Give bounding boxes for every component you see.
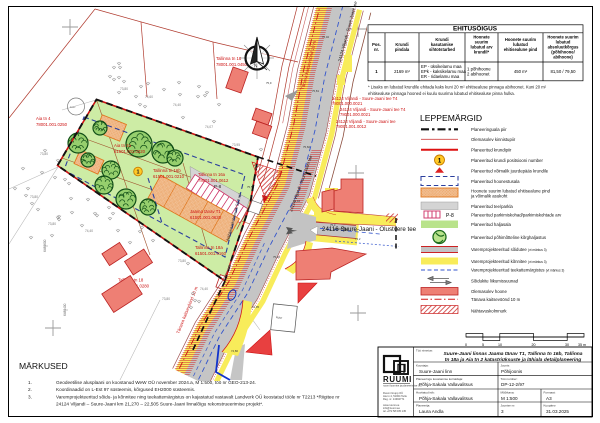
svg-text:78001.000.0021: 78001.000.0021	[340, 112, 371, 117]
svg-text:75,5: 75,5	[247, 185, 253, 189]
svg-text:5: 5	[482, 343, 484, 347]
svg-text:Varemprojekteeritud teekattemä: Varemprojekteeritud teekattemärgistus (v…	[471, 268, 564, 273]
svg-text:Põhja-Sakala Vallavalitsus: Põhja-Sakala Vallavalitsus	[419, 382, 473, 387]
svg-text:pindala: pindala	[395, 47, 410, 52]
svg-text:P-8: P-8	[214, 184, 222, 189]
svg-text:6480600: 6480600	[43, 239, 47, 252]
svg-text:Laura Andla: Laura Andla	[419, 409, 444, 414]
svg-text:P-8: P-8	[446, 213, 454, 219]
svg-text:1: 1	[137, 169, 140, 175]
svg-text:krundil*: krundil*	[474, 50, 490, 55]
svg-text:LEPPEMÄRGID: LEPPEMÄRGID	[420, 113, 482, 123]
svg-text:Tallinna tn 16a: Tallinna tn 16a	[198, 172, 226, 177]
svg-text:Planeerija:: Planeerija:	[416, 404, 430, 408]
svg-text:3: 3	[501, 409, 504, 414]
svg-text:74,40: 74,40	[200, 287, 208, 291]
svg-text:Koordinaadid on L-Est 97 süste: Koordinaadid on L-Est 97 süsteemis, kõrg…	[56, 387, 195, 392]
svg-text:Reg. nr. 14392771: Reg. nr. 14392771	[383, 397, 405, 401]
svg-text:Koostaja:: Koostaja:	[416, 364, 429, 368]
svg-text:450 m²: 450 m²	[514, 69, 528, 74]
svg-text:73,80: 73,80	[178, 259, 186, 263]
svg-text:78001.001.0012: 78001.001.0012	[336, 124, 367, 129]
svg-text:RUUMI: RUUMI	[383, 375, 412, 384]
svg-text:Tänava kaitsevöönd 10 m: Tänava kaitsevöönd 10 m	[471, 297, 521, 302]
svg-text:Planeeringuala piir: Planeeringuala piir	[471, 127, 507, 132]
svg-text:73,80: 73,80	[40, 152, 48, 156]
svg-text:75,60: 75,60	[303, 145, 310, 149]
svg-text:61501.001.0220: 61501.001.0220	[114, 149, 146, 154]
svg-text:1.: 1.	[28, 380, 32, 385]
svg-text:3.: 3.	[28, 395, 32, 400]
svg-text:tel +372 58 005 145: tel +372 58 005 145	[383, 409, 407, 413]
svg-text:Planeeritud krundipiir: Planeeritud krundipiir	[471, 148, 512, 153]
svg-text:35 m: 35 m	[578, 343, 586, 347]
svg-text:2 abihoonet: 2 abihoonet	[467, 72, 490, 77]
svg-text:M 1:500: M 1:500	[501, 396, 518, 401]
svg-text:6480400: 6480400	[63, 303, 67, 316]
svg-text:74,40: 74,40	[173, 103, 181, 107]
svg-text:Huvitatud isik:: Huvitatud isik:	[416, 391, 435, 395]
svg-text:ruumi loomise ja planeerimise: ruumi loomise ja planeerimise OÜ	[383, 384, 422, 388]
svg-text:Formaat:: Formaat:	[544, 391, 556, 395]
svg-text:Suure-Jaani linn: Suure-Jaani linn	[419, 369, 453, 374]
svg-text:Põhijoonis: Põhijoonis	[501, 369, 523, 374]
svg-text:75,81: 75,81	[312, 89, 319, 93]
svg-text:Aia tn 2a: Aia tn 2a	[114, 143, 132, 148]
svg-text:Planeeritud hoonestusala: Planeeritud hoonestusala	[471, 179, 520, 184]
svg-text:81,50 / 79,50: 81,50 / 79,50	[550, 69, 576, 74]
svg-text:kaev: kaev	[70, 105, 76, 109]
svg-text:Jaama tänav T1: Jaama tänav T1	[190, 209, 221, 214]
svg-text:Töö number:: Töö number:	[501, 377, 518, 381]
svg-text:ja võimalik asukoht: ja võimalik asukoht	[470, 194, 508, 199]
svg-text:75,9: 75,9	[266, 81, 272, 85]
svg-text:74,40: 74,40	[85, 229, 93, 233]
svg-text:78001.000.0021: 78001.000.0021	[332, 101, 363, 106]
svg-text:Joonis:: Joonis:	[501, 364, 511, 368]
svg-text:73,80: 73,80	[162, 297, 170, 301]
svg-text:A3: A3	[546, 396, 552, 401]
svg-text:73,95: 73,95	[232, 143, 240, 147]
svg-text:Sõidukite liikumissuunad: Sõidukite liikumissuunad	[471, 279, 519, 284]
svg-text:73,80: 73,80	[30, 195, 38, 199]
svg-text:Mõõtkava:: Mõõtkava:	[501, 391, 515, 395]
svg-text:Nähtavuskolmnurk: Nähtavuskolmnurk	[471, 309, 507, 314]
svg-text:78001.001.0450: 78001.001.0450	[216, 62, 248, 67]
svg-text:74,80: 74,80	[231, 349, 238, 353]
svg-text:sihtotstarbed: sihtotstarbed	[429, 47, 455, 52]
svg-text:Suure-Jaani linnas Jaama tänav: Suure-Jaani linnas Jaama tänav T1, Talli…	[443, 351, 582, 357]
svg-text:0: 0	[465, 343, 467, 347]
svg-text:MÄRKUSED: MÄRKUSED	[19, 361, 68, 371]
svg-text:78001.001.0612: 78001.001.0612	[198, 178, 229, 183]
svg-text:61501.001.0160: 61501.001.0160	[195, 251, 227, 256]
svg-text:Olemasolev kinnistupiir: Olemasolev kinnistupiir	[471, 137, 516, 142]
svg-text:Planeeritud tee/parkla: Planeeritud tee/parkla	[471, 204, 513, 209]
svg-text:2.: 2.	[28, 387, 32, 392]
svg-text:61501.001.0620: 61501.001.0620	[190, 215, 222, 220]
svg-text:ehitisealuse pinnaga hooned ei: ehitisealuse pinnaga hooned ei kuulu suu…	[368, 91, 515, 96]
svg-text:30: 30	[565, 343, 569, 347]
svg-text:nr.: nr.	[374, 47, 379, 52]
svg-text:61501.001.0210: 61501.001.0210	[153, 174, 185, 179]
svg-text:2169 m²: 2169 m²	[394, 69, 410, 74]
svg-text:Planeeritud parkimiskohad/park: Planeeritud parkimiskohad/parkimiskohtad…	[471, 213, 562, 218]
svg-text:tn 18a ja Aia tn 2 katastriüks: tn 18a ja Aia tn 2 katastriüksuste ja lä…	[445, 357, 582, 363]
svg-text:Kuupäev:: Kuupäev:	[544, 404, 557, 408]
svg-text:Töö nimetus:: Töö nimetus:	[416, 349, 433, 353]
svg-text:EHITUSÕIGUS: EHITUSÕIGUS	[453, 24, 498, 33]
svg-text:Planeeritud võimalik juurdepää: Planeeritud võimalik juurdepääs krundile	[471, 169, 549, 174]
svg-text:74,07: 74,07	[205, 125, 213, 129]
svg-text:74,60: 74,60	[145, 95, 153, 99]
svg-text:Planeeritud põhimõtteline kõrg: Planeeritud põhimõtteline kõrghaljastus	[471, 235, 546, 240]
svg-text:Geodeetilise alusplaani on koo: Geodeetilise alusplaani on koostanud WeW…	[56, 379, 256, 385]
svg-text:abihoone): abihoone)	[553, 55, 573, 60]
svg-text:ehitisealune pind: ehitisealune pind	[504, 47, 538, 52]
svg-text:Varemprojekteeritud kõnnitee (: Varemprojekteeritud kõnnitee (vt märkus …	[471, 259, 547, 264]
svg-text:20: 20	[532, 343, 536, 347]
svg-text:Aia tn 4: Aia tn 4	[36, 116, 51, 121]
svg-text:73,80: 73,80	[48, 222, 56, 226]
svg-text:* Lisaks on lubatud krundile e: * Lisaks on lubatud krundile ehitada kak…	[368, 85, 547, 90]
svg-text:Planeeringu koostamise korrald: Planeeringu koostamise korraldaja:	[416, 377, 463, 381]
svg-text:Tallinna tn 18a: Tallinna tn 18a	[195, 245, 223, 250]
svg-text:Olemasolev hoone: Olemasolev hoone	[471, 289, 507, 294]
svg-text:78001.001.0250: 78001.001.0250	[36, 122, 68, 127]
svg-text:73,80: 73,80	[120, 87, 128, 91]
svg-text:ER - ridaelamu maa: ER - ridaelamu maa	[421, 74, 460, 79]
svg-text:75,2: 75,2	[355, 237, 361, 241]
svg-text:24124 Viljandi – Suure-Jaani k: 24124 Viljandi – Suure-Jaani km 21,270 –…	[56, 402, 263, 407]
svg-text:10: 10	[498, 343, 502, 347]
svg-text:Planeeritud krundi positsiooni: Planeeritud krundi positsiooni number	[471, 158, 543, 163]
svg-text:Varemprojekteeritud sõidu- ja: Varemprojekteeritud sõidu- ja kõnnitee n…	[56, 394, 340, 400]
svg-text:Planeeritud haljasala: Planeeritud haljasala	[471, 222, 512, 227]
svg-text:Tallinna tn 16b: Tallinna tn 16b	[153, 168, 181, 173]
svg-text:74,95: 74,95	[252, 305, 259, 309]
svg-text:24116 Suure-Jaani - Olustvere: 24116 Suure-Jaani - Olustvere tee	[322, 226, 417, 233]
svg-text:75,20: 75,20	[273, 255, 280, 259]
svg-text:Varemprojekteeritud sõidutee (: Varemprojekteeritud sõidutee (vt märkus …	[471, 247, 547, 252]
svg-text:Joonise nr:: Joonise nr:	[501, 404, 516, 408]
svg-text:DP-12-2/97: DP-12-2/97	[501, 382, 525, 387]
svg-text:Põhja-Sakala Vallavalitsus: Põhja-Sakala Vallavalitsus	[419, 396, 473, 401]
svg-text:31.03.2025: 31.03.2025	[546, 409, 569, 414]
svg-text:Tallinna tn 18: Tallinna tn 18	[216, 56, 242, 61]
svg-text:76,02: 76,02	[322, 35, 329, 39]
svg-text:N: N	[254, 64, 258, 70]
